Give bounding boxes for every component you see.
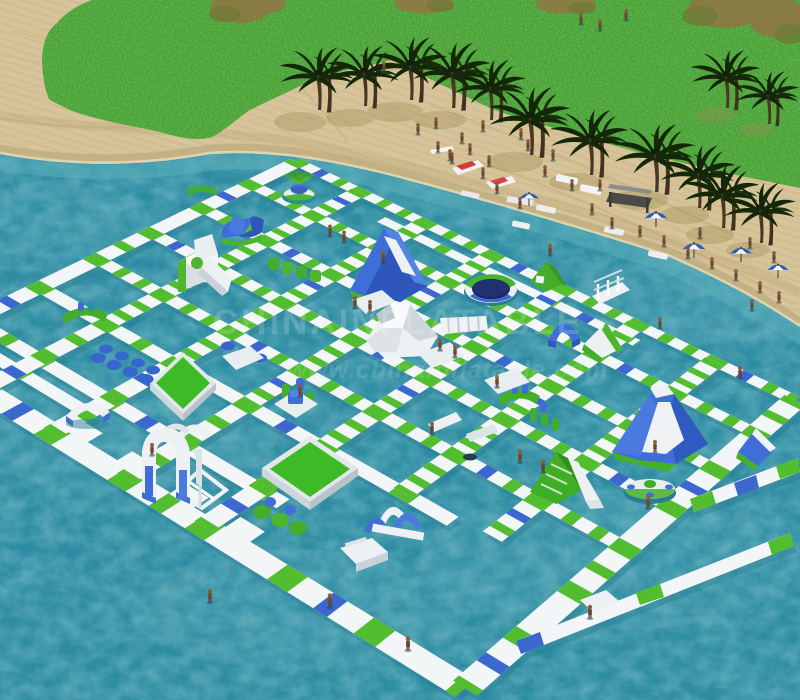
svg-text:CHINAINFLATABLE: CHINAINFLATABLE [213,303,583,342]
svg-text:www.chinainflatable.com: www.chinainflatable.com [288,356,609,384]
